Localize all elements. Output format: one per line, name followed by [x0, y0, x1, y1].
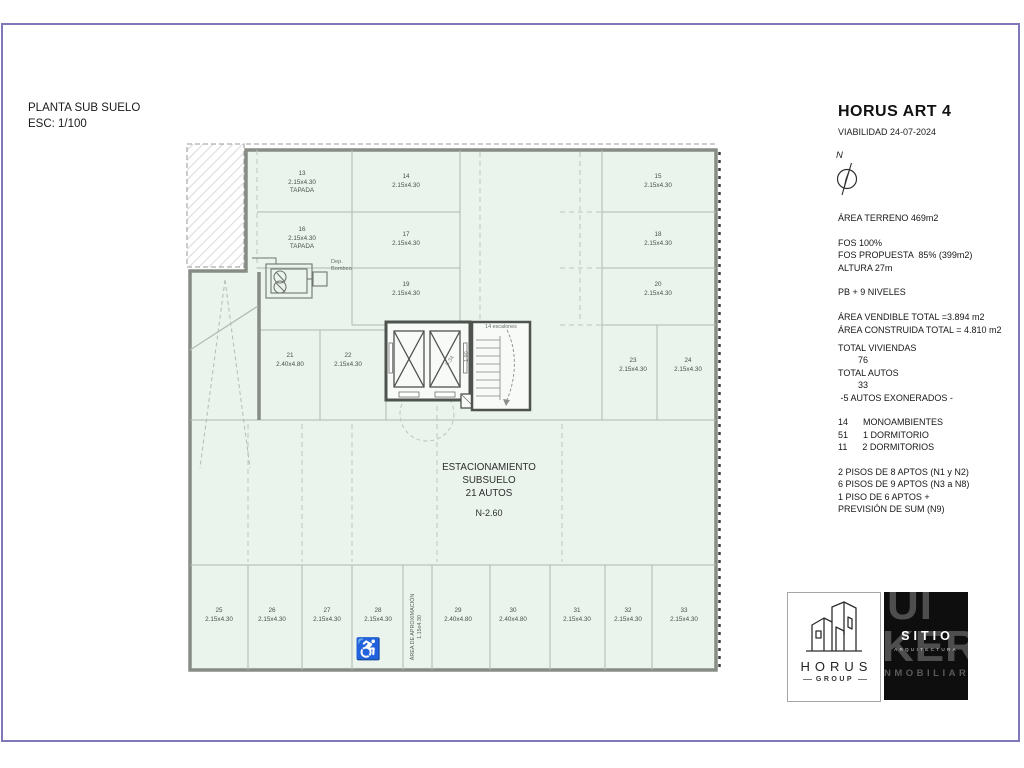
north-arrow-icon [838, 163, 857, 195]
parking-spot-32: 322.15x4.30 [614, 607, 642, 624]
parking-spot-33: 332.15x4.30 [670, 607, 698, 624]
parking-spot-17: 172.15x4.30 [392, 231, 420, 248]
horus-group-logo: HORUS GROUP [787, 592, 881, 702]
core-dim-height: 1.90 [464, 351, 470, 362]
parking-spot-26: 262.15x4.30 [258, 607, 286, 624]
parking-spot-25: 252.15x4.30 [205, 607, 233, 624]
parking-spot-16: 162.15x4.30TAPADA [288, 226, 316, 252]
drawing-sheet: PLANTA SUB SUELO ESC: 1/100 HORUS ART 4 … [0, 0, 1024, 768]
horus-logo-building-icon [802, 601, 866, 655]
wheelchair-icon: ♿ [355, 638, 381, 662]
parking-spot-24: 242.15x4.30 [674, 357, 702, 374]
horus-logo-name: HORUS [796, 659, 873, 674]
parking-spot-20: 202.15x4.30 [644, 281, 672, 298]
stairs-label: 14 escalones [474, 324, 528, 330]
level-label: N-2.60 [475, 508, 502, 518]
sitio-logo-name: SITIO [884, 629, 968, 643]
parking-spot-27: 272.15x4.30 [313, 607, 341, 624]
parking-title: ESTACIONAMIENTO SUBSUELO 21 AUTOS [442, 461, 536, 500]
building-outline [190, 150, 720, 670]
horus-logo-sub: GROUP [816, 676, 854, 683]
parking-spot-22: 222.15x4.30 [334, 352, 362, 369]
pump-room-label: Dep. Bombeo [331, 259, 352, 273]
parking-spot-21: 212.40x4.80 [276, 352, 304, 369]
parking-spot-29: 292.40x4.80 [444, 607, 472, 624]
parking-spot-30: 302.40x4.80 [499, 607, 527, 624]
parking-spot-19: 192.15x4.30 [392, 281, 420, 298]
parking-spot-15: 152.15x4.30 [644, 173, 672, 190]
sitio-logo-sub: ARQUITECTURA [884, 647, 968, 652]
staircase [472, 322, 530, 410]
parking-spot-14: 142.15x4.30 [392, 173, 420, 190]
approach-area-label: ÁREA DE APROXIMACIÓN 1.15x4.30 [410, 582, 424, 672]
parking-spot-31: 312.15x4.30 [563, 607, 591, 624]
quiker-watermark-bottom: NMOBILIARI [884, 668, 968, 679]
parking-spot-23: 232.15x4.30 [619, 357, 647, 374]
parking-spot-13: 132.15x4.30TAPADA [288, 170, 316, 196]
elevator-core: 5.34 1.90 [386, 322, 475, 408]
sitio-logo: UI KER SITIO ARQUITECTURA NMOBILIARI [884, 592, 968, 700]
parking-spot-28: 282.15x4.30 [364, 607, 392, 624]
parking-spot-18: 182.15x4.30 [644, 231, 672, 248]
